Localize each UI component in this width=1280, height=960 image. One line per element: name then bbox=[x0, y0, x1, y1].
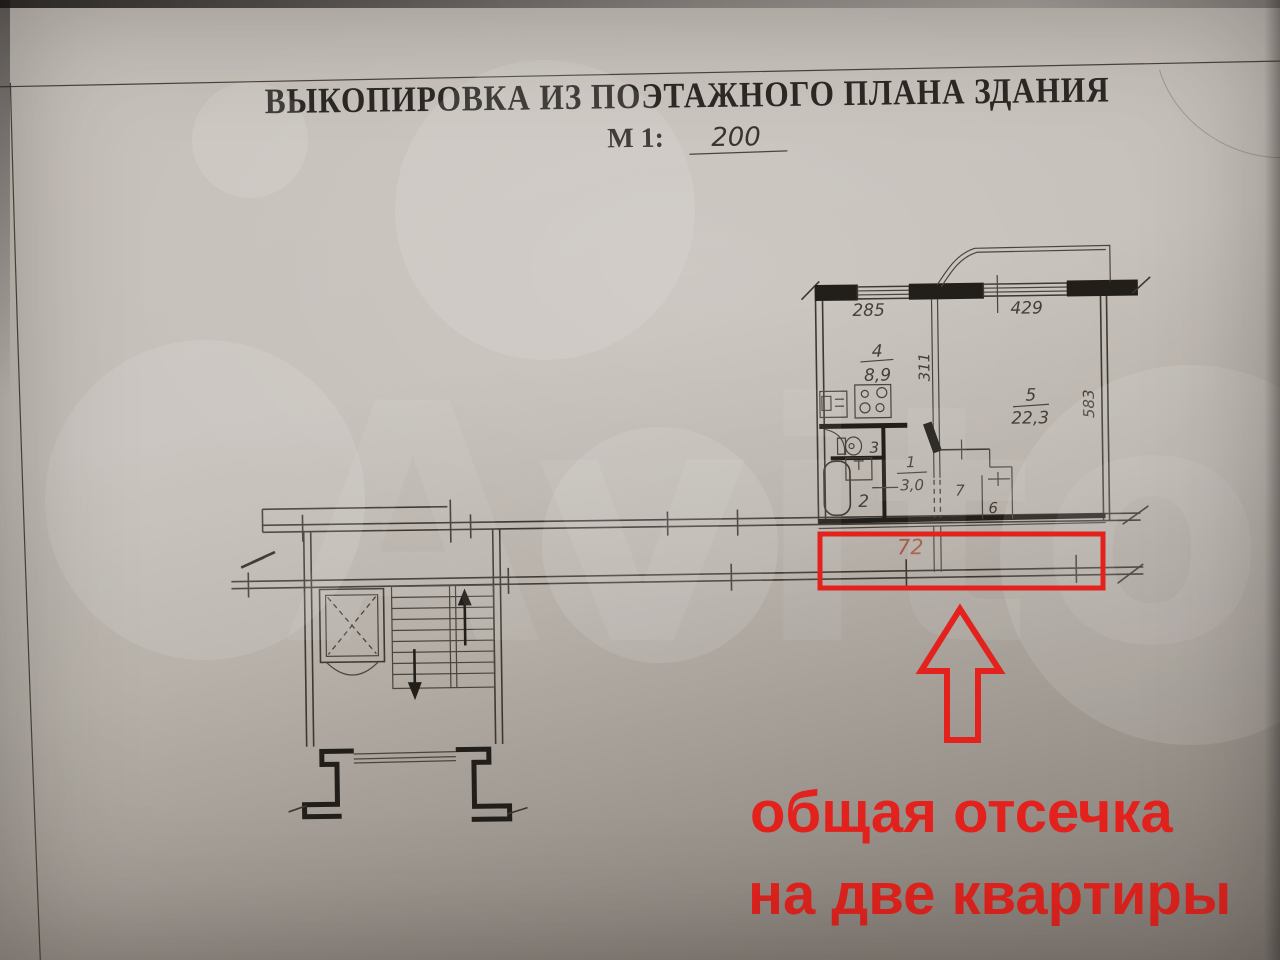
window-wall: 285 429 bbox=[801, 273, 1151, 322]
document-title: ВЫКОПИРОВКА ИЗ ПОЭТАЖНОГО ПЛАНА ЗДАНИЯ bbox=[264, 69, 1109, 121]
photo-edge-left bbox=[0, 0, 10, 400]
window-icon bbox=[983, 283, 1067, 296]
building-entrance bbox=[288, 749, 528, 822]
annotation-line2: на две квартиры bbox=[748, 862, 1231, 927]
floor-plan-drawing: ВЫКОПИРОВКА ИЗ ПОЭТАЖНОГО ПЛАНА ЗДАНИЯ М… bbox=[0, 0, 1280, 960]
photo-edge-top bbox=[0, 0, 1280, 8]
watermark-dot bbox=[395, 60, 695, 360]
watermark-text: Avito bbox=[285, 334, 1271, 718]
watermark-dot bbox=[192, 82, 308, 198]
floor-plan-photo: ВЫКОПИРОВКА ИЗ ПОЭТАЖНОГО ПЛАНА ЗДАНИЯ М… bbox=[0, 0, 1280, 960]
dimension-429: 429 bbox=[1010, 298, 1043, 318]
window-icon bbox=[857, 286, 909, 299]
annotation-line1: общая отсечка bbox=[750, 780, 1174, 845]
watermark: Avito bbox=[45, 60, 1280, 745]
scale-value: 200 bbox=[711, 122, 761, 153]
dimension-285: 285 bbox=[852, 301, 885, 321]
document-border-left bbox=[10, 83, 40, 960]
